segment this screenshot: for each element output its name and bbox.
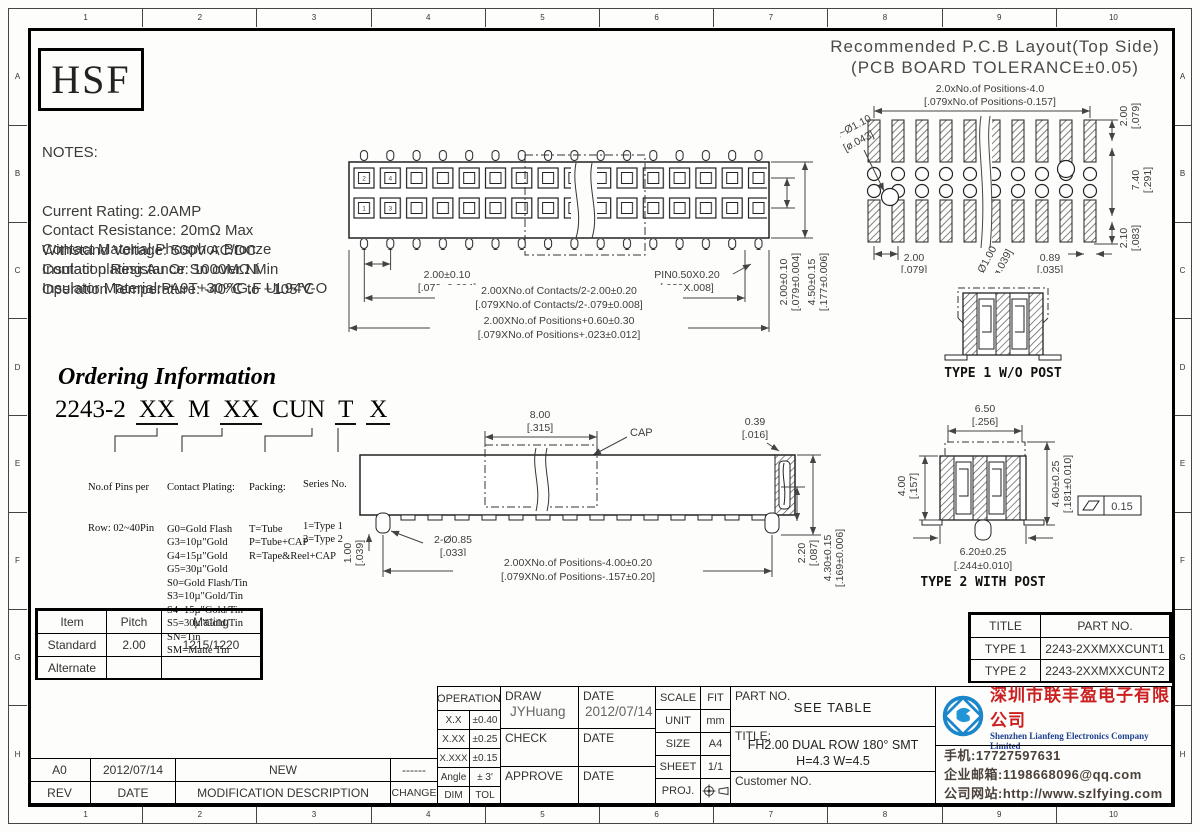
revision-desc-header: MODIFICATION DESCRIPTION (175, 781, 391, 804)
company-phone: 手机:17727597631 (944, 746, 1061, 765)
ruler-top-cell: 4 (372, 8, 486, 27)
part-table-header-partno: PART NO. (1040, 614, 1170, 638)
customer-label: Customer NO. (735, 774, 812, 788)
svg-text:[.181±0.010]: [.181±0.010] (1062, 455, 1074, 513)
part-table-header-title: TITLE (970, 614, 1041, 638)
notes-heading: NOTES: (42, 143, 314, 163)
ruler-bottom: 12345678910 (29, 805, 1170, 824)
ruler-top-cell: 2 (143, 8, 257, 27)
ruler-left: ABCDEFGH (8, 29, 27, 802)
tol-label-xxx: X.XX (437, 729, 470, 749)
unit-value: mm (700, 709, 731, 733)
svg-text:[.079XNo.of Positions-.157±0.2: [.079XNo.of Positions-.157±0.20] (501, 571, 655, 583)
svg-text:[.291]: [.291] (1142, 167, 1154, 193)
ruler-bottom-cell: 1 (29, 805, 143, 824)
svg-text:6.50: 6.50 (975, 403, 996, 415)
part-table-type1-pn: 2243-2XXMXXCUNT1 (1040, 637, 1170, 660)
ruler-bottom-cell: 10 (1057, 805, 1170, 824)
ruler-bottom-cell: 5 (486, 805, 600, 824)
revision-date-value: 2012/07/14 (90, 758, 176, 782)
ruler-left-cell: G (8, 610, 27, 707)
company-logo-icon (940, 693, 986, 739)
plating-option: G3=10µ"Gold (167, 536, 248, 550)
svg-text:[.315]: [.315] (527, 422, 553, 434)
drawing-sheet: 12345678910 12345678910 ABCDEFGH ABCDEFG… (0, 0, 1200, 832)
svg-text:2-Ø0.85: 2-Ø0.85 (434, 534, 472, 546)
ordering-code-cun: CUN (272, 396, 325, 423)
ruler-top-cell: 6 (600, 8, 714, 27)
svg-text:[.169±0.006]: [.169±0.006] (834, 529, 846, 587)
material-line: Contact plating:Au Or Sn over Ni (42, 260, 327, 280)
mating-row-alternate: Alternate (37, 656, 107, 680)
svg-text:1: 1 (362, 206, 366, 213)
ruler-right-cell: B (1173, 126, 1192, 223)
revision-rev-value: A0 (28, 758, 91, 782)
company-website: 公司网站:http://www.szlfying.com (944, 784, 1163, 803)
ruler-right-cell: C (1173, 223, 1192, 320)
notes-line: Current Rating: 2.0AMP (42, 202, 314, 222)
company-contact-cell: 手机:17727597631 企业邮箱:1198668096@qq.com 公司… (935, 745, 1172, 804)
ordering-title: Ordering Information (58, 364, 276, 391)
svg-text:3: 3 (388, 206, 392, 213)
ruler-left-cell: C (8, 223, 27, 320)
part-table-type2-pn: 2243-2XXMXXCUNT2 (1040, 659, 1170, 682)
ordering-code-m: M (188, 396, 210, 423)
svg-text:2.10: 2.10 (1118, 228, 1130, 249)
svg-text:7.40: 7.40 (1130, 170, 1142, 191)
tol-value-xxxx: ±0.15 (469, 748, 501, 768)
tol-value-xx: ±0.40 (469, 710, 501, 730)
tol-label-dim: DIM (437, 786, 470, 804)
type2-label: TYPE 2 WITH POST (920, 575, 1045, 590)
pins-note-line2: Row: 02~40Pin (88, 522, 154, 536)
draw-value: JYHuang (510, 704, 566, 719)
ruler-top-cell: 5 (486, 8, 600, 27)
ordering-code-plating: XX (220, 396, 262, 425)
material-line: Contact Material:Phosphor Bronze (42, 240, 327, 260)
svg-text:[.087]: [.087] (808, 540, 820, 566)
proj-symbol-cell (700, 778, 731, 804)
pcb-layout-title: Recommended P.C.B Layout(Top Side) (PCB … (810, 36, 1180, 78)
hsf-logo-text: HSF (51, 56, 130, 103)
svg-text:[.083]: [.083] (1130, 225, 1142, 251)
svg-text:4.60±0.25: 4.60±0.25 (1050, 461, 1062, 508)
ruler-bottom-cell: 7 (714, 805, 828, 824)
approve-date-label: DATE (583, 769, 614, 783)
mating-alternate-pitch (106, 656, 162, 680)
plating-option: G0=Gold Flash (167, 523, 248, 537)
operation-header: OPERATION (437, 686, 501, 711)
mating-header-item: Item (37, 610, 107, 634)
tol-label-angle: Angle (437, 767, 470, 787)
check-cell: CHECK (500, 728, 579, 767)
check-date-label: DATE (583, 731, 614, 745)
svg-text:2.00±0.10: 2.00±0.10 (778, 259, 790, 306)
svg-text:0.15: 0.15 (1111, 501, 1132, 513)
part-number-table: TITLE PART NO. TYPE 1 2243-2XXMXXCUNT1 T… (968, 612, 1172, 683)
svg-text:6.20±0.25: 6.20±0.25 (960, 546, 1007, 558)
ruler-top-cell: 7 (714, 8, 828, 27)
ruler-left-cell: H (8, 706, 27, 802)
scale-value: FIT (700, 686, 731, 710)
revision-desc-value: NEW (175, 758, 391, 782)
connector-top-view: 2 4 1 3 2.00±0.10 [.079±0.004] PIN0.50X0… (335, 150, 840, 350)
svg-text:PIN0.50X0.20: PIN0.50X0.20 (654, 269, 720, 281)
hsf-logo: HSF (38, 48, 144, 111)
plating-option: S3=10µ"Gold/Tin (167, 590, 248, 604)
svg-text:2.00: 2.00 (904, 252, 925, 264)
approve-label: APPROVE (505, 769, 563, 783)
ruler-right-cell: G (1173, 610, 1192, 707)
svg-text:[.079XNo.of Positions+.023±0.0: [.079XNo.of Positions+.023±0.012] (478, 329, 641, 341)
ruler-top-cell: 3 (257, 8, 371, 27)
mating-alternate-mating (161, 656, 261, 680)
ruler-right: ABCDEFGH (1173, 29, 1192, 802)
ordering-pins-note: No.of Pins per Row: 02~40Pin (88, 454, 154, 562)
svg-text:4.50±0.15: 4.50±0.15 (806, 259, 818, 306)
svg-text:[.244±0.010]: [.244±0.010] (954, 560, 1012, 572)
plating-option: G5=30µ"Gold (167, 563, 248, 577)
svg-text:[.079±0.004]: [.079±0.004] (790, 253, 802, 311)
svg-text:[.079]: [.079] (1130, 103, 1142, 129)
flatness-callout: 0.15 (1078, 496, 1141, 515)
sheet-label: SHEET (655, 755, 701, 779)
pcb-layout-title-line2: (PCB BOARD TOLERANCE±0.05) (810, 57, 1180, 78)
ordering-code-pins: XX (136, 396, 178, 425)
mating-table: Item Pitch Mating Standard 2.00 1215/122… (35, 608, 263, 680)
ruler-right-cell: H (1173, 706, 1192, 802)
svg-text:2.0xNo.of Positions-4.0: 2.0xNo.of Positions-4.0 (936, 83, 1045, 95)
ruler-right-cell: E (1173, 416, 1192, 513)
materials-block: Contact Material:Phosphor BronzeContact … (42, 240, 327, 299)
size-value: A4 (700, 732, 731, 756)
ruler-top: 12345678910 (29, 8, 1170, 27)
ruler-top-cell: 10 (1057, 8, 1170, 27)
ruler-left-cell: E (8, 416, 27, 513)
svg-text:[.256]: [.256] (972, 416, 998, 428)
draw-date-value: 2012/07/14 (585, 704, 653, 719)
ordering-code-base: 2243-2 (55, 396, 126, 423)
mating-header-pitch: Pitch (106, 610, 162, 634)
svg-text:[.177±0.006]: [.177±0.006] (818, 253, 830, 311)
first-angle-projection-icon (702, 784, 730, 798)
notes-line: Contact Resistance: 20mΩ Max (42, 221, 314, 241)
connector-side-view: 8.00 [.315] CAP 0.39 [.016] 2-Ø0.85 [.03… (335, 403, 850, 603)
svg-text:[.079xNo.of Positions-0.157]: [.079xNo.of Positions-0.157] (924, 96, 1056, 108)
ruler-left-cell: A (8, 29, 27, 126)
type1-end-view: TYPE 1 W/O POST (928, 278, 1078, 383)
tol-label-xx: X.X (437, 710, 470, 730)
svg-text:[.157]: [.157] (908, 473, 920, 499)
svg-text:[.035]: [.035] (1037, 264, 1063, 273)
ruler-top-cell: 8 (828, 8, 942, 27)
svg-text:0.89: 0.89 (1040, 252, 1061, 264)
ruler-right-cell: F (1173, 513, 1192, 610)
scale-label: SCALE (655, 686, 701, 710)
sheet-value: 1/1 (700, 755, 731, 779)
ruler-left-cell: F (8, 513, 27, 610)
check-label: CHECK (505, 731, 547, 745)
ruler-bottom-cell: 3 (257, 805, 371, 824)
ruler-bottom-cell: 6 (600, 805, 714, 824)
tol-value-angle: ± 3' (469, 767, 501, 787)
svg-text:4.30±0.15: 4.30±0.15 (822, 535, 834, 582)
ruler-top-cell: 9 (943, 8, 1057, 27)
mating-standard-pitch: 2.00 (106, 633, 162, 657)
notes-block: NOTES: Current Rating: 2.0AMPContact Res… (42, 104, 314, 338)
ruler-bottom-cell: 9 (943, 805, 1057, 824)
type1-label: TYPE 1 W/O POST (944, 366, 1062, 381)
ruler-bottom-cell: 8 (828, 805, 942, 824)
unit-label: UNIT (655, 709, 701, 733)
ruler-bottom-cell: 2 (143, 805, 257, 824)
mating-standard-mating: 1215/1220 (161, 633, 261, 657)
approve-cell: APPROVE (500, 766, 579, 804)
mating-row-standard: Standard (37, 633, 107, 657)
pins-note-line1: No.of Pins per (88, 481, 154, 495)
approve-date-cell: DATE (578, 766, 656, 804)
customer-cell: Customer NO. (730, 771, 936, 804)
revision-date-header: DATE (90, 781, 176, 804)
svg-text:1.00: 1.00 (342, 543, 354, 564)
plating-option: G4=15µ"Gold (167, 550, 248, 564)
ruler-bottom-cell: 4 (372, 805, 486, 824)
svg-text:2: 2 (362, 176, 366, 183)
ruler-left-cell: D (8, 319, 27, 416)
pcb-layout-title-line1: Recommended P.C.B Layout(Top Side) (810, 36, 1180, 57)
company-header-cell: 深圳市联丰盈电子有限公司 Shenzhen Lianfeng Electroni… (935, 686, 1172, 746)
svg-text:[.039]: [.039] (354, 540, 366, 566)
svg-text:0.39: 0.39 (745, 416, 766, 428)
svg-text:CAP: CAP (630, 427, 653, 439)
draw-date-label: DATE (583, 689, 614, 703)
plating-option: S0=Gold Flash/Tin (167, 577, 248, 591)
company-email: 企业邮箱:1198668096@qq.com (944, 765, 1142, 784)
ruler-right-cell: D (1173, 319, 1192, 416)
svg-text:2.00XNo.of Contacts/2-2.00±0.2: 2.00XNo.of Contacts/2-2.00±0.20 (481, 285, 637, 297)
size-label: SIZE (655, 732, 701, 756)
tol-value-dim: TOL (469, 786, 501, 804)
svg-text:4.00: 4.00 (896, 476, 908, 497)
part-table-type1: TYPE 1 (970, 637, 1041, 660)
material-line: Insulator Material:PA9T+30%G.F UL94V-O (42, 279, 327, 299)
revision-change-header: CHANGE (390, 781, 438, 804)
tol-label-xxxx: X.XXX (437, 748, 470, 768)
plating-label: Contact Plating: (167, 481, 248, 495)
revision-rev-header: REV (28, 781, 91, 804)
pcb-layout-drawing: 2.0xNo.of Positions-4.0 [.079xNo.of Posi… (840, 78, 1170, 273)
partno-value: SEE TABLE (730, 700, 936, 715)
check-date-cell: DATE (578, 728, 656, 767)
type2-end-view: 6.50 [.256] 4.00 [.157] 4.60±0.25 [.181±… (893, 398, 1148, 593)
svg-text:2.00XNo.of Positions+0.60±0.30: 2.00XNo.of Positions+0.60±0.30 (484, 315, 635, 327)
svg-text:[.016]: [.016] (742, 429, 768, 441)
svg-text:2.20: 2.20 (796, 543, 808, 564)
company-name-cn: 深圳市联丰盈电子有限公司 (990, 681, 1171, 731)
tol-value-xxx: ±0.25 (469, 729, 501, 749)
svg-text:2.00: 2.00 (1118, 106, 1130, 127)
title-line2: H=4.3 W=4.5 (730, 754, 936, 768)
svg-text:2.00XNo.of Positions-4.00±0.20: 2.00XNo.of Positions-4.00±0.20 (504, 557, 652, 569)
mating-header-mating: Mating (161, 610, 261, 634)
ruler-top-cell: 1 (29, 8, 143, 27)
proj-label: PROJ. (655, 778, 701, 804)
svg-text:[.079XNo.of Contacts/2-.079±0.: [.079XNo.of Contacts/2-.079±0.008] (475, 299, 643, 311)
ruler-left-cell: B (8, 126, 27, 223)
revision-change-value: ------ (390, 758, 438, 782)
svg-text:2.00±0.10: 2.00±0.10 (424, 269, 471, 281)
draw-label: DRAW (505, 689, 541, 703)
part-table-type2: TYPE 2 (970, 659, 1041, 682)
title-line1: FH2.00 DUAL ROW 180° SMT (730, 738, 936, 752)
svg-text:8.00: 8.00 (530, 409, 551, 421)
svg-text:[.079]: [.079] (901, 264, 927, 273)
svg-text:4: 4 (388, 176, 392, 183)
